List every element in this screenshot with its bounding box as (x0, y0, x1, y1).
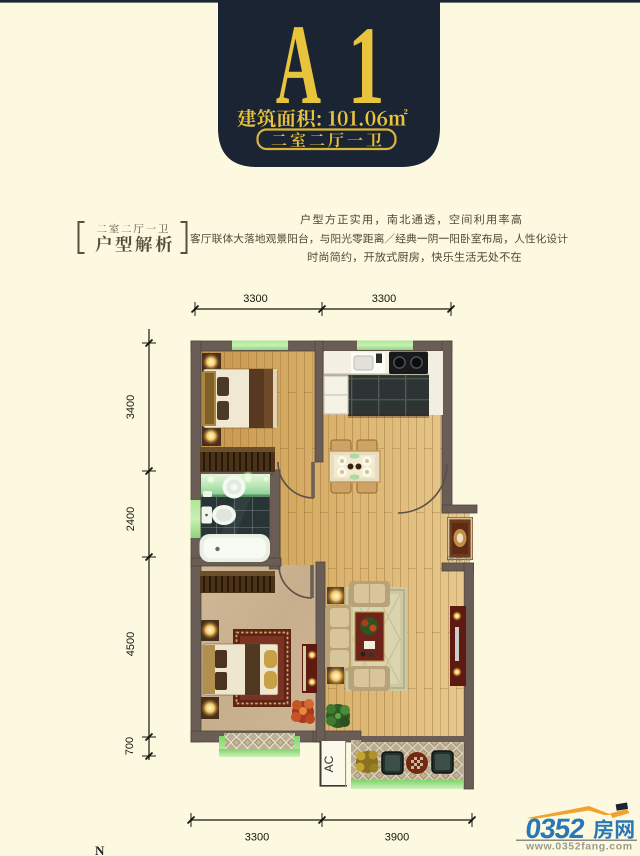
svg-text:3300: 3300 (372, 293, 396, 305)
svg-text:N: N (95, 843, 105, 856)
svg-text:700: 700 (124, 737, 136, 755)
svg-text:AC: AC (322, 755, 336, 772)
svg-text:3300: 3300 (245, 832, 269, 844)
svg-text:4500: 4500 (125, 632, 137, 656)
svg-text:3400: 3400 (125, 395, 137, 419)
svg-text:0352: 0352 (524, 813, 586, 844)
svg-text:3300: 3300 (243, 293, 267, 305)
svg-text:www.0352fang.com: www.0352fang.com (525, 841, 633, 853)
svg-text:3900: 3900 (385, 832, 409, 844)
svg-text:2400: 2400 (125, 507, 137, 531)
svg-text:06-pp-40: 06-pp-40 (447, 557, 472, 563)
